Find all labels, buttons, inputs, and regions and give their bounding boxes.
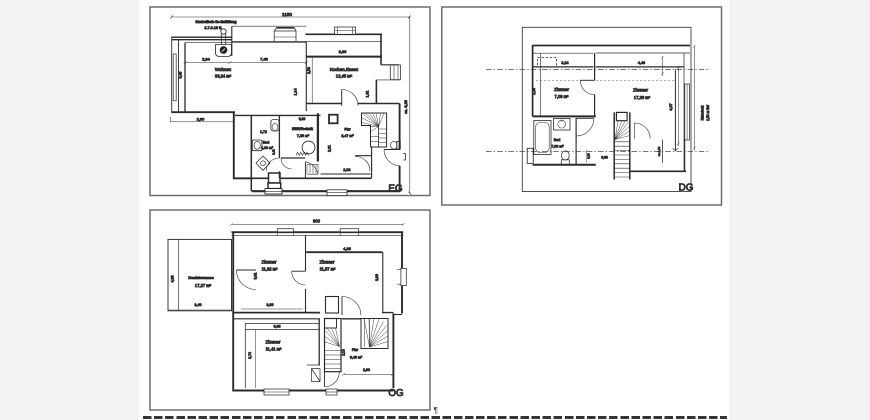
svg-text:Zimmer: Zimmer bbox=[554, 87, 569, 92]
svg-text:2,38: 2,38 bbox=[343, 168, 350, 172]
svg-text:1,50 m tief: 1,50 m tief bbox=[706, 105, 710, 121]
svg-text:3,61: 3,61 bbox=[253, 273, 257, 280]
svg-text:4,98: 4,98 bbox=[171, 276, 175, 283]
svg-text:OG: OG bbox=[388, 388, 403, 399]
svg-text:Bad: Bad bbox=[263, 140, 270, 144]
svg-text:33,24 m²: 33,24 m² bbox=[215, 74, 232, 79]
svg-text:8,47 m²: 8,47 m² bbox=[341, 134, 354, 138]
svg-text:17,26 m²: 17,26 m² bbox=[634, 95, 651, 100]
svg-text:1150: 1150 bbox=[282, 12, 292, 17]
svg-text:Flur: Flur bbox=[352, 348, 359, 352]
svg-text:12,45 m²: 12,45 m² bbox=[336, 73, 353, 78]
svg-text:DG: DG bbox=[679, 183, 694, 194]
svg-text:Bad: Bad bbox=[554, 138, 561, 142]
svg-text:2,34: 2,34 bbox=[202, 56, 211, 61]
svg-text:Flur: Flur bbox=[344, 127, 351, 131]
svg-text:2,80: 2,80 bbox=[197, 117, 206, 122]
svg-text:3,68: 3,68 bbox=[274, 325, 281, 329]
svg-text:2,11: 2,11 bbox=[272, 149, 276, 155]
svg-text:Kniestock: Kniestock bbox=[701, 105, 705, 120]
svg-text:Zimmer: Zimmer bbox=[633, 88, 648, 93]
svg-text:Zimmer: Zimmer bbox=[320, 260, 335, 265]
svg-text:Dachterrasse: Dachterrasse bbox=[188, 275, 214, 280]
svg-text:11,57 m²: 11,57 m² bbox=[320, 266, 336, 271]
svg-text:3,46: 3,46 bbox=[195, 303, 202, 307]
svg-text:1,91: 1,91 bbox=[366, 91, 370, 98]
svg-text:1,72: 1,72 bbox=[260, 130, 267, 134]
svg-text:HWR/Technik: HWR/Technik bbox=[292, 127, 313, 131]
svg-text:5,43: 5,43 bbox=[178, 72, 182, 79]
svg-text:2,13: 2,13 bbox=[341, 349, 345, 356]
svg-text:4,07: 4,07 bbox=[669, 103, 673, 110]
svg-text:6,28: 6,28 bbox=[299, 117, 306, 121]
svg-text:900: 900 bbox=[313, 218, 321, 223]
svg-text:11,82 m²: 11,82 m² bbox=[262, 266, 278, 271]
svg-text:17,27 m²: 17,27 m² bbox=[195, 283, 212, 288]
svg-text:2.7.8.15 B: 2.7.8.15 B bbox=[204, 26, 222, 30]
svg-text:3,05: 3,05 bbox=[267, 303, 274, 307]
svg-text:7,09 m²: 7,09 m² bbox=[555, 94, 570, 99]
svg-text:2,74: 2,74 bbox=[248, 352, 252, 359]
svg-text:0,38: 0,38 bbox=[601, 156, 608, 160]
svg-text:ca.1,00: ca.1,00 bbox=[657, 146, 661, 156]
svg-text:7,80 m²: 7,80 m² bbox=[551, 144, 564, 148]
svg-text:7,49: 7,49 bbox=[260, 56, 269, 61]
svg-text:2,01: 2,01 bbox=[327, 145, 331, 152]
svg-text:7,35 m²: 7,35 m² bbox=[297, 134, 310, 138]
svg-text:9,49 m²: 9,49 m² bbox=[350, 355, 363, 359]
svg-text:0,89: 0,89 bbox=[587, 153, 591, 159]
svg-text:4,43: 4,43 bbox=[638, 61, 645, 65]
svg-text:2,50: 2,50 bbox=[307, 67, 311, 74]
svg-text:Kontrollierte Be-Entlüftung: Kontrollierte Be-Entlüftung bbox=[196, 20, 237, 24]
svg-text:3,24: 3,24 bbox=[561, 61, 568, 65]
svg-text:2,90: 2,90 bbox=[363, 368, 370, 372]
svg-text:Zimmer: Zimmer bbox=[266, 339, 281, 344]
svg-text:1,14: 1,14 bbox=[293, 89, 297, 96]
svg-text:Wohnen: Wohnen bbox=[215, 67, 232, 72]
svg-text:3,60: 3,60 bbox=[375, 274, 379, 281]
svg-text:Zimmer: Zimmer bbox=[262, 260, 277, 265]
svg-text:EG: EG bbox=[388, 184, 402, 195]
svg-text:3,86: 3,86 bbox=[339, 49, 348, 54]
svg-text:2,26: 2,26 bbox=[532, 88, 536, 95]
svg-text:4,28: 4,28 bbox=[343, 246, 352, 251]
svg-text:11,41 m²: 11,41 m² bbox=[266, 346, 282, 351]
svg-text:Kochen.Essen: Kochen.Essen bbox=[330, 67, 359, 72]
svg-text:ca. 8,26: ca. 8,26 bbox=[403, 100, 408, 114]
